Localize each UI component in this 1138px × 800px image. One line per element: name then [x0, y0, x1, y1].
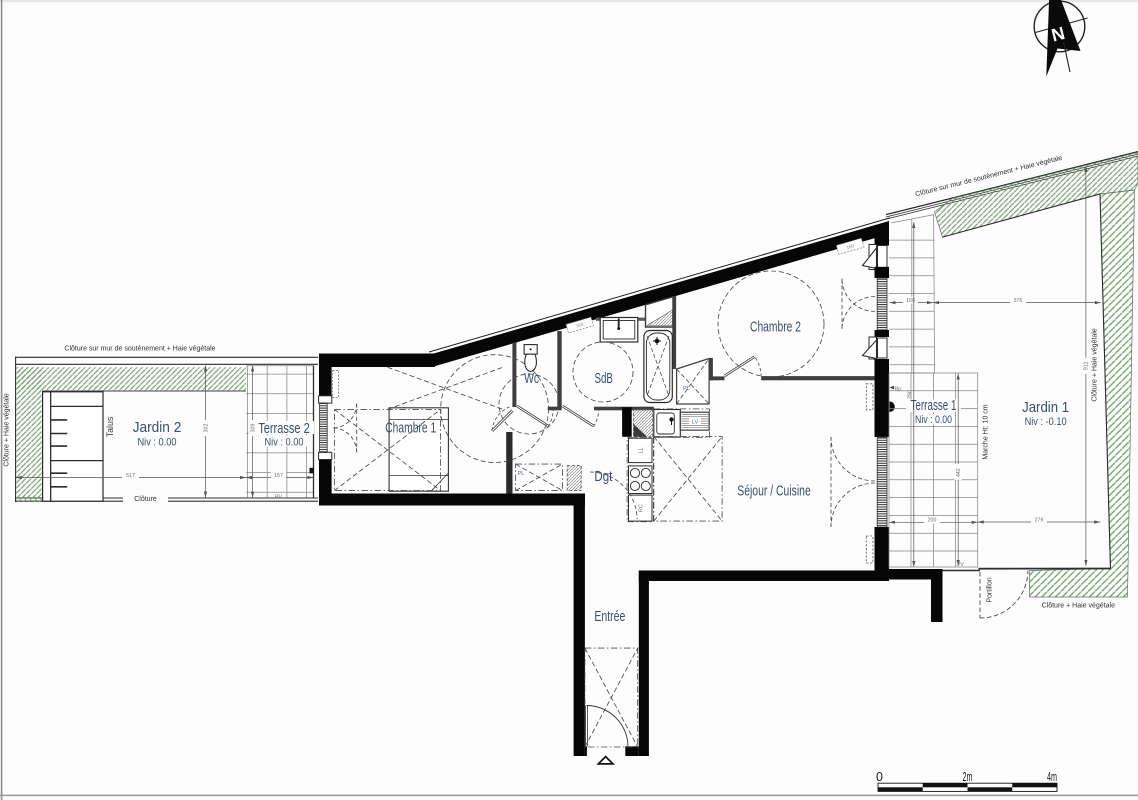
svg-text:Niv : -0.10: Niv : -0.10 — [1025, 416, 1067, 428]
svg-text:Séjour / Cuisine: Séjour / Cuisine — [737, 484, 811, 500]
svg-text:517: 517 — [126, 473, 135, 479]
svg-text:LV: LV — [692, 420, 699, 426]
svg-text:912: 912 — [1084, 361, 1090, 370]
svg-text:Clôture: Clôture — [134, 496, 157, 503]
svg-text:Clôture sur mur de soutènement: Clôture sur mur de soutènement + Haie vé… — [64, 346, 215, 353]
svg-text:376: 376 — [1014, 298, 1023, 304]
svg-text:Dgt: Dgt — [594, 469, 612, 485]
svg-text:0: 0 — [876, 770, 883, 784]
svg-text:Wc: Wc — [524, 371, 539, 387]
svg-text:Niv : 0.00: Niv : 0.00 — [265, 437, 304, 449]
svg-text:790: 790 — [908, 390, 914, 399]
svg-text:SdB: SdB — [594, 371, 613, 387]
svg-text:Portillon: Portillon — [986, 577, 993, 602]
svg-text:Clôture + Haie végétale: Clôture + Haie végétale — [1092, 328, 1099, 401]
svg-text:Chambre 2: Chambre 2 — [750, 320, 801, 336]
svg-text:Chambre 1: Chambre 1 — [385, 421, 436, 437]
svg-text:Terrasse 1: Terrasse 1 — [911, 398, 957, 414]
svg-text:PL: PL — [518, 471, 525, 477]
svg-text:Marche Ht: 10 cm: Marche Ht: 10 cm — [982, 404, 989, 459]
svg-text:276: 276 — [1035, 517, 1044, 523]
svg-text:PV: PV — [275, 495, 282, 501]
svg-text:Jardin 1: Jardin 1 — [1022, 400, 1069, 416]
svg-text:4m: 4m — [1047, 770, 1057, 784]
svg-text:Niv : 0.00: Niv : 0.00 — [915, 414, 952, 426]
svg-text:157: 157 — [274, 473, 283, 479]
svg-text:Clôture + Haie végétale: Clôture + Haie végétale — [4, 393, 11, 466]
svg-text:Talus: Talus — [105, 416, 115, 437]
svg-text:442: 442 — [956, 468, 962, 477]
svg-text:302: 302 — [203, 424, 209, 433]
svg-text:LL: LL — [639, 447, 645, 453]
svg-text:Clôture + Haie végétale: Clôture + Haie végétale — [1042, 603, 1115, 610]
svg-text:2m: 2m — [963, 770, 973, 784]
svg-text:309: 309 — [250, 424, 256, 433]
svg-text:PV: PV — [957, 562, 964, 568]
svg-text:PL: PL — [683, 386, 690, 392]
svg-text:Rp: Rp — [895, 387, 902, 393]
svg-text:Terrasse 2: Terrasse 2 — [258, 421, 310, 437]
svg-text:200: 200 — [928, 518, 937, 524]
svg-text:Jardin 2: Jardin 2 — [133, 420, 182, 436]
svg-text:Entrée: Entrée — [594, 609, 625, 625]
svg-text:Niv : 0.00: Niv : 0.00 — [138, 437, 177, 449]
svg-text:RC: RC — [639, 504, 645, 512]
